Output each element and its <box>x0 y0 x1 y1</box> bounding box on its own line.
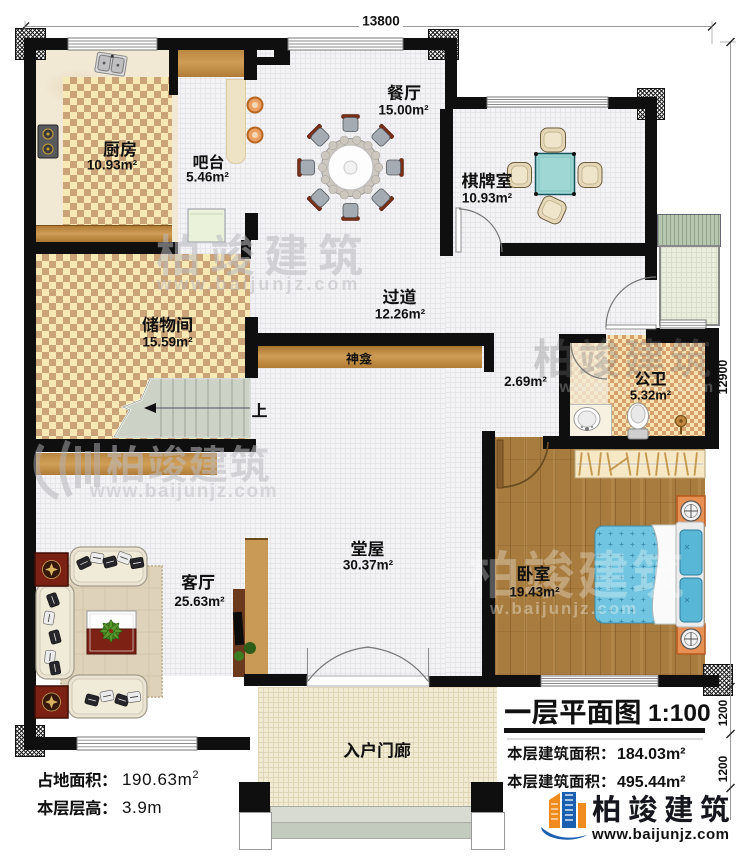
svg-text:10.93m²: 10.93m² <box>462 191 513 206</box>
svg-text:5.46m²: 5.46m² <box>186 170 229 185</box>
svg-text:3.9m: 3.9m <box>122 798 162 817</box>
svg-text:1200: 1200 <box>716 755 730 782</box>
svg-text:190.63m2: 190.63m2 <box>122 769 199 789</box>
svg-text:www.baijunjz.com: www.baijunjz.com <box>156 274 360 294</box>
svg-text:2.69m²: 2.69m² <box>504 374 547 389</box>
svg-text:15.00m²: 15.00m² <box>378 103 429 118</box>
svg-text:25.63m²: 25.63m² <box>174 594 225 609</box>
svg-text:19.43m²: 19.43m² <box>509 585 560 600</box>
svg-text:w.baijunjz.com: w.baijunjz.com <box>489 599 638 618</box>
svg-text:13800: 13800 <box>362 14 400 29</box>
svg-text:10.93m²: 10.93m² <box>87 158 138 173</box>
svg-text:www.baijunjz.com: www.baijunjz.com <box>89 481 278 502</box>
svg-text:12900: 12900 <box>716 360 730 395</box>
svg-text:15.59m²: 15.59m² <box>142 335 193 350</box>
svg-text:www.baijunjz.com: www.baijunjz.com <box>591 826 729 843</box>
svg-text:30.37m²: 30.37m² <box>343 558 394 573</box>
svg-text:1200: 1200 <box>716 699 730 726</box>
svg-text:495.44m²: 495.44m² <box>617 774 686 791</box>
svg-text:5.32m²: 5.32m² <box>630 388 672 403</box>
svg-text:1:100: 1:100 <box>648 700 711 727</box>
svg-text:184.03m²: 184.03m² <box>617 746 686 763</box>
svg-text:12.26m²: 12.26m² <box>375 307 426 322</box>
